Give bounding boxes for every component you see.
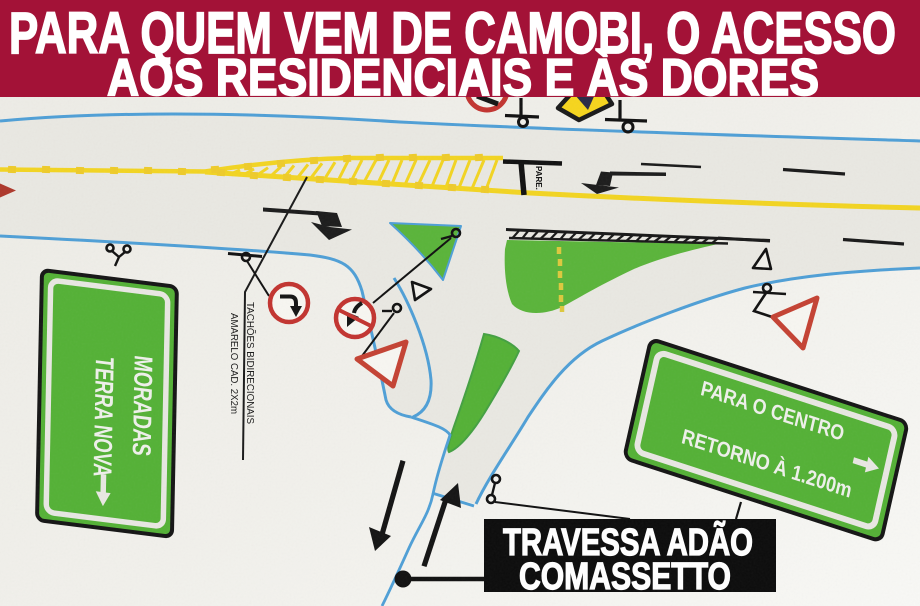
svg-text:AOS RESIDENCIAIS E ÀS DORES: AOS RESIDENCIAIS E ÀS DORES xyxy=(107,49,819,107)
